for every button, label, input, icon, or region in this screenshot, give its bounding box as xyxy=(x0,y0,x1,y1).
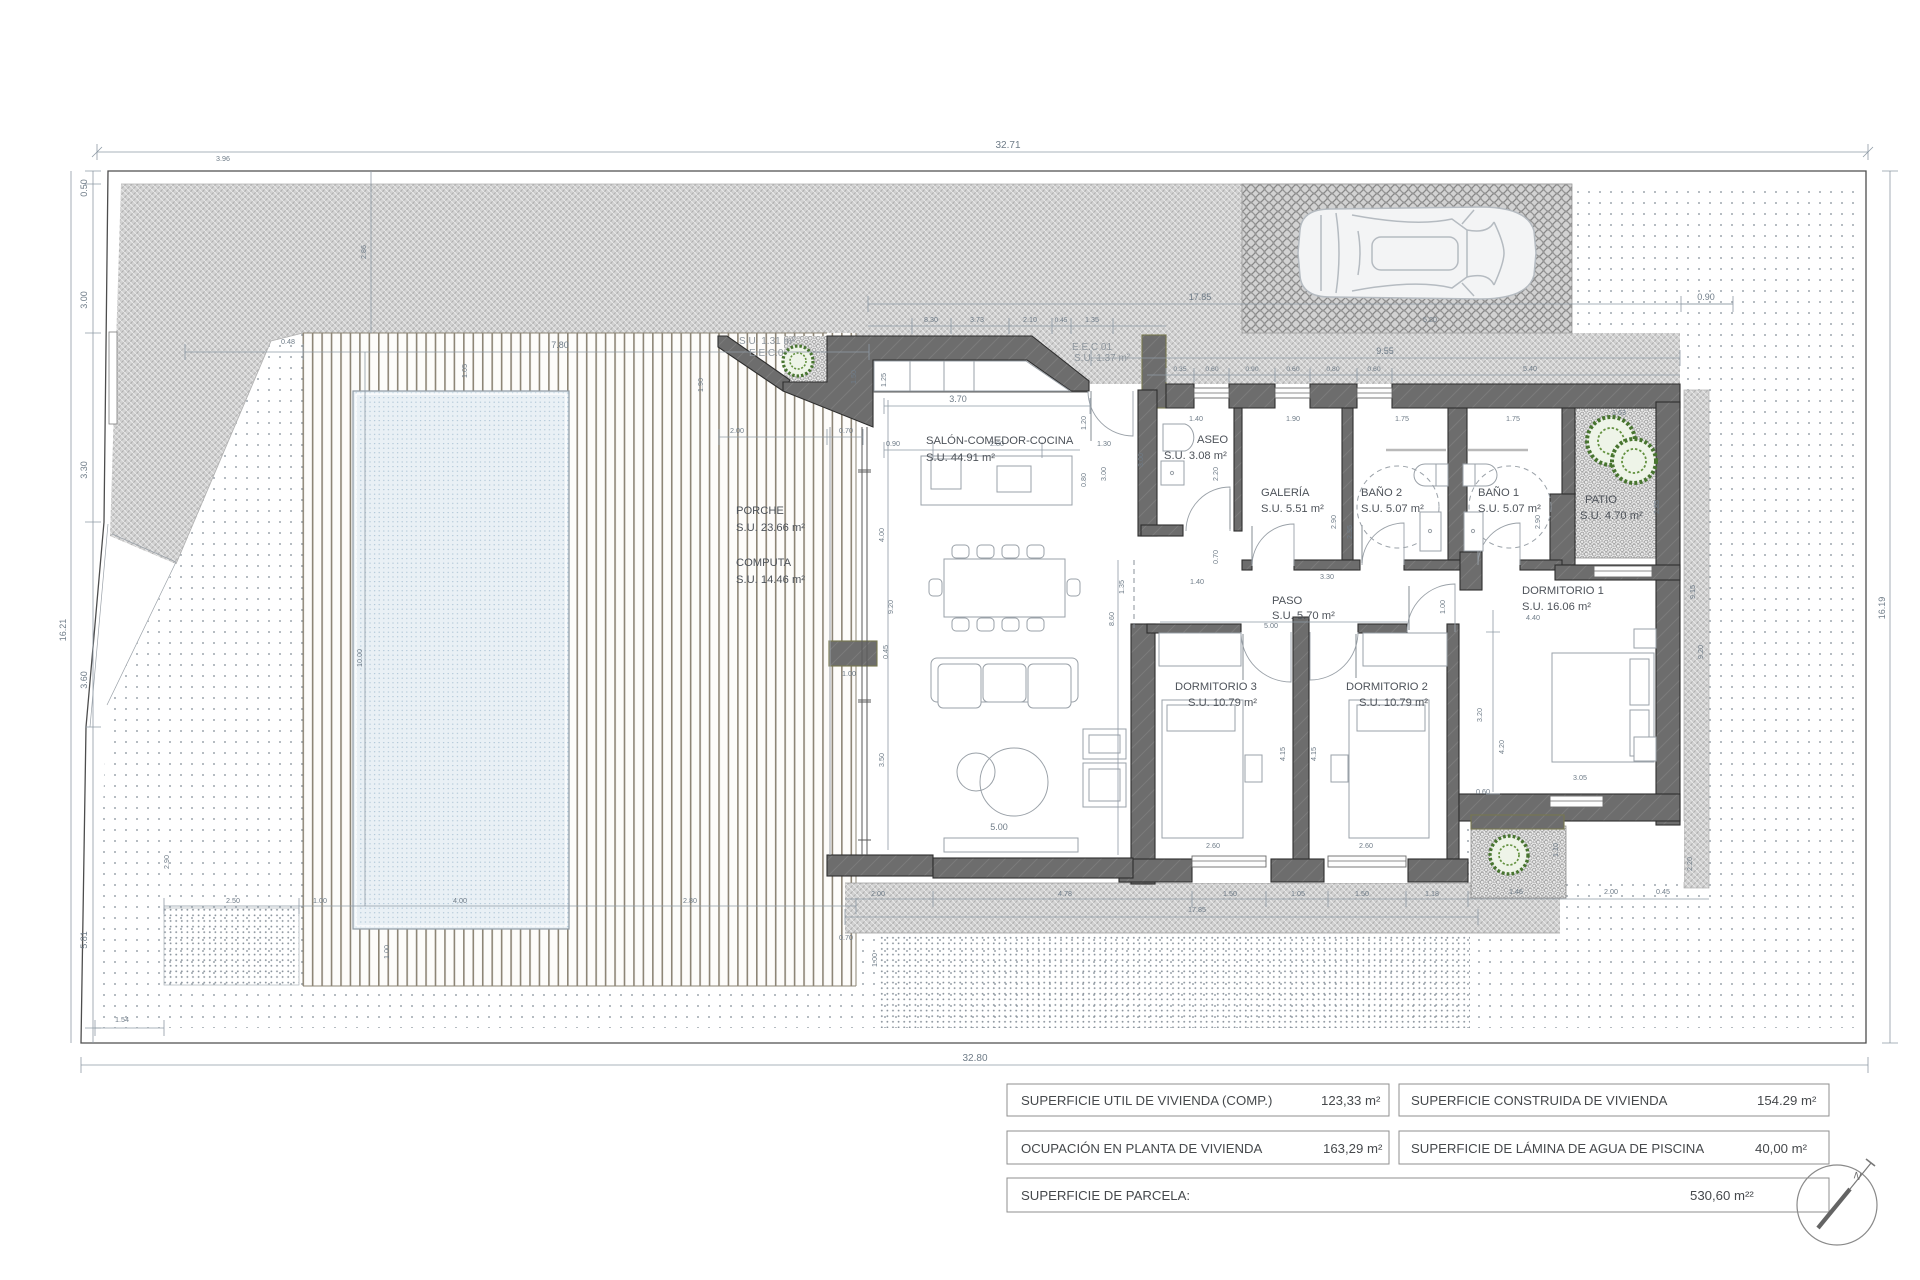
svg-text:3.20: 3.20 xyxy=(1475,708,1484,722)
svg-text:1.50: 1.50 xyxy=(1355,889,1369,898)
svg-text:E.E.C.0: E.E.C.0 xyxy=(749,348,784,359)
svg-text:S.U. 3.08 m²: S.U. 3.08 m² xyxy=(1164,450,1227,462)
svg-text:1.75: 1.75 xyxy=(1395,414,1409,423)
svg-text:5.20: 5.20 xyxy=(1423,315,1437,324)
svg-text:0.60: 0.60 xyxy=(1476,787,1490,796)
svg-text:1.00: 1.00 xyxy=(1438,600,1447,614)
svg-text:163,29 m²: 163,29 m² xyxy=(1323,1141,1383,1156)
svg-text:530,60 m²²: 530,60 m²² xyxy=(1690,1188,1754,1203)
svg-text:0.60: 0.60 xyxy=(1286,366,1299,373)
svg-text:10.00: 10.00 xyxy=(355,649,364,667)
svg-text:S.U. 23.66 m²: S.U. 23.66 m² xyxy=(736,522,805,534)
svg-text:0.70: 0.70 xyxy=(839,426,853,435)
svg-text:5.40: 5.40 xyxy=(1523,364,1537,373)
svg-text:1.00: 1.00 xyxy=(382,945,391,959)
svg-text:1.00: 1.00 xyxy=(870,953,879,967)
svg-text:0.50: 0.50 xyxy=(79,179,89,197)
svg-text:2.00: 2.00 xyxy=(871,889,885,898)
svg-text:3.96: 3.96 xyxy=(216,154,230,163)
svg-text:DORMITORIO 1: DORMITORIO 1 xyxy=(1522,585,1604,597)
svg-text:4.15: 4.15 xyxy=(1278,747,1287,761)
svg-text:0.48: 0.48 xyxy=(281,337,295,346)
svg-text:9.20: 9.20 xyxy=(1696,645,1705,659)
svg-text:3.70: 3.70 xyxy=(949,394,967,404)
svg-text:1.54: 1.54 xyxy=(115,1015,129,1024)
svg-text:S.U. 5.51 m²: S.U. 5.51 m² xyxy=(1261,503,1324,515)
svg-text:32.80: 32.80 xyxy=(962,1053,987,1064)
svg-text:9.15: 9.15 xyxy=(1688,585,1697,599)
svg-text:9.20: 9.20 xyxy=(886,600,895,614)
svg-text:1.30: 1.30 xyxy=(1097,439,1111,448)
svg-text:BAÑO 1: BAÑO 1 xyxy=(1478,486,1519,499)
svg-text:2.80: 2.80 xyxy=(683,896,697,905)
svg-text:2.86: 2.86 xyxy=(359,245,368,259)
svg-text:S.U. 1.37 m²: S.U. 1.37 m² xyxy=(1074,353,1131,364)
svg-text:1.90: 1.90 xyxy=(696,378,705,392)
svg-text:1.05: 1.05 xyxy=(460,364,469,378)
svg-text:1.46: 1.46 xyxy=(1509,887,1523,896)
svg-text:1.00: 1.00 xyxy=(842,669,856,678)
svg-text:5.81: 5.81 xyxy=(79,931,89,949)
svg-text:1.75: 1.75 xyxy=(1506,414,1520,423)
svg-text:PATIO: PATIO xyxy=(1585,494,1617,506)
svg-text:1.40: 1.40 xyxy=(1189,414,1203,423)
svg-text:0.60: 0.60 xyxy=(1367,366,1380,373)
svg-text:1.10: 1.10 xyxy=(1551,843,1560,857)
svg-text:2.85: 2.85 xyxy=(1652,500,1661,514)
svg-text:0.70: 0.70 xyxy=(839,933,853,942)
svg-text:3.30: 3.30 xyxy=(1320,572,1334,581)
svg-text:4.00: 4.00 xyxy=(877,528,886,542)
svg-text:2.90: 2.90 xyxy=(1533,515,1542,529)
svg-text:0.90: 0.90 xyxy=(1697,292,1715,302)
svg-text:S.U. 5.70 m²: S.U. 5.70 m² xyxy=(1272,610,1335,622)
svg-text:SUPERFICIE UTIL DE VIVIENDA (: SUPERFICIE UTIL DE VIVIENDA (COMP.) xyxy=(1021,1093,1272,1108)
svg-text:7.80: 7.80 xyxy=(551,340,569,350)
svg-text:0.60: 0.60 xyxy=(1205,366,1218,373)
svg-text:1.63: 1.63 xyxy=(1612,408,1626,417)
svg-text:0.45: 0.45 xyxy=(1055,317,1068,324)
svg-text:0.90: 0.90 xyxy=(1245,366,1258,373)
svg-text:154.29 m²: 154.29 m² xyxy=(1757,1093,1817,1108)
svg-text:17.85: 17.85 xyxy=(1189,292,1212,302)
svg-text:SUPERFICIE CONSTRUIDA DE VIVIE: SUPERFICIE CONSTRUIDA DE VIVIENDA xyxy=(1411,1093,1668,1108)
svg-text:1.40: 1.40 xyxy=(1190,577,1204,586)
svg-text:2.60: 2.60 xyxy=(1359,841,1373,850)
svg-text:2.90: 2.90 xyxy=(162,855,171,869)
svg-text:0.45: 0.45 xyxy=(881,645,890,659)
svg-text:8.60: 8.60 xyxy=(1107,612,1116,626)
svg-text:0.70: 0.70 xyxy=(1211,550,1220,564)
svg-text:1.18: 1.18 xyxy=(1425,889,1439,898)
svg-text:2.50: 2.50 xyxy=(226,896,240,905)
svg-text:3.00: 3.00 xyxy=(1099,467,1108,481)
svg-text:3.60: 3.60 xyxy=(79,671,89,689)
svg-text:1.20: 1.20 xyxy=(1079,416,1088,430)
svg-text:SUPERFICIE DE LÁMINA DE AGUA D: SUPERFICIE DE LÁMINA DE AGUA DE PISCINA xyxy=(1411,1141,1704,1156)
svg-text:S.U. 5.07 m²: S.U. 5.07 m² xyxy=(1478,503,1541,515)
svg-text:DORMITORIO 2: DORMITORIO 2 xyxy=(1346,681,1428,693)
svg-text:ASEO: ASEO xyxy=(1197,434,1228,446)
svg-text:1.00: 1.00 xyxy=(313,896,327,905)
svg-text:2.90: 2.90 xyxy=(1329,515,1338,529)
svg-text:GALERÍA: GALERÍA xyxy=(1261,486,1310,499)
svg-text:4.78: 4.78 xyxy=(1058,889,1072,898)
svg-text:40,00 m²: 40,00 m² xyxy=(1755,1141,1808,1156)
svg-text:S.U. 1.31 m²: S.U. 1.31 m² xyxy=(739,336,796,347)
svg-text:1.50: 1.50 xyxy=(1223,889,1237,898)
svg-text:2.95: 2.95 xyxy=(1345,525,1354,539)
svg-text:S.U. 5.07 m²: S.U. 5.07 m² xyxy=(1361,503,1424,515)
svg-text:1.50: 1.50 xyxy=(849,370,858,384)
svg-text:3.50: 3.50 xyxy=(877,753,886,767)
svg-text:SUPERFICIE DE PARCELA:: SUPERFICIE DE PARCELA: xyxy=(1021,1188,1190,1203)
svg-text:3.00: 3.00 xyxy=(79,291,89,309)
svg-text:16.19: 16.19 xyxy=(1877,597,1887,620)
svg-text:BAÑO 2: BAÑO 2 xyxy=(1361,486,1402,499)
svg-text:1.90: 1.90 xyxy=(1286,414,1300,423)
svg-text:4.40: 4.40 xyxy=(1526,613,1540,622)
svg-text:0.35: 0.35 xyxy=(1173,366,1186,373)
svg-text:1.25: 1.25 xyxy=(879,373,888,387)
svg-text:2.20: 2.20 xyxy=(1685,857,1694,871)
svg-text:9.55: 9.55 xyxy=(1376,346,1394,356)
svg-text:1.35: 1.35 xyxy=(1117,580,1126,594)
svg-text:17.85: 17.85 xyxy=(1188,905,1206,914)
svg-text:16.21: 16.21 xyxy=(58,619,68,642)
svg-text:DORMITORIO 3: DORMITORIO 3 xyxy=(1175,681,1257,693)
svg-text:S.U. 4.70 m²: S.U. 4.70 m² xyxy=(1580,510,1643,522)
svg-text:3.73: 3.73 xyxy=(970,315,984,324)
svg-text:3.05: 3.05 xyxy=(1573,773,1587,782)
svg-text:4.20: 4.20 xyxy=(1497,740,1506,754)
svg-text:2.00: 2.00 xyxy=(730,426,744,435)
svg-text:1.05: 1.05 xyxy=(1291,889,1305,898)
svg-text:0.45: 0.45 xyxy=(1656,887,1670,896)
svg-text:5.00: 5.00 xyxy=(1264,621,1278,630)
svg-text:S.U. 14.46 m²: S.U. 14.46 m² xyxy=(736,574,805,586)
svg-text:0.90: 0.90 xyxy=(886,439,900,448)
svg-text:2.20: 2.20 xyxy=(1211,467,1220,481)
svg-text:2.00: 2.00 xyxy=(1604,887,1618,896)
svg-text:S.U. 10.79 m²: S.U. 10.79 m² xyxy=(1188,697,1257,709)
svg-text:4.15: 4.15 xyxy=(1309,747,1318,761)
svg-text:5.00: 5.00 xyxy=(990,822,1008,832)
svg-text:PORCHE: PORCHE xyxy=(736,505,784,517)
svg-text:PASO: PASO xyxy=(1272,595,1303,607)
svg-text:S.U. 10.79 m²: S.U. 10.79 m² xyxy=(1359,697,1428,709)
svg-text:S.U. 44.91 m²: S.U. 44.91 m² xyxy=(926,452,995,464)
svg-text:3.00: 3.00 xyxy=(1136,453,1145,467)
svg-text:1.35: 1.35 xyxy=(1085,315,1099,324)
svg-text:0.80: 0.80 xyxy=(1326,366,1339,373)
svg-text:OCUPACIÓN EN PLANTA DE VIVIEND: OCUPACIÓN EN PLANTA DE VIVIENDA xyxy=(1021,1141,1263,1156)
svg-text:32.71: 32.71 xyxy=(995,140,1020,151)
svg-text:4.00: 4.00 xyxy=(453,896,467,905)
svg-text:2.60: 2.60 xyxy=(1206,841,1220,850)
svg-text:S.U. 16.06 m²: S.U. 16.06 m² xyxy=(1522,601,1591,613)
svg-text:8.30: 8.30 xyxy=(924,315,938,324)
svg-text:COMPUTA: COMPUTA xyxy=(736,557,792,569)
svg-text:0.80: 0.80 xyxy=(1079,473,1088,487)
svg-text:123,33 m²: 123,33 m² xyxy=(1321,1093,1381,1108)
svg-text:2.10: 2.10 xyxy=(1023,315,1037,324)
svg-text:SALÓN-COMEDOR-COCINA: SALÓN-COMEDOR-COCINA xyxy=(926,434,1074,447)
svg-text:E.E.C 01: E.E.C 01 xyxy=(1072,342,1112,353)
svg-text:3.30: 3.30 xyxy=(79,461,89,479)
